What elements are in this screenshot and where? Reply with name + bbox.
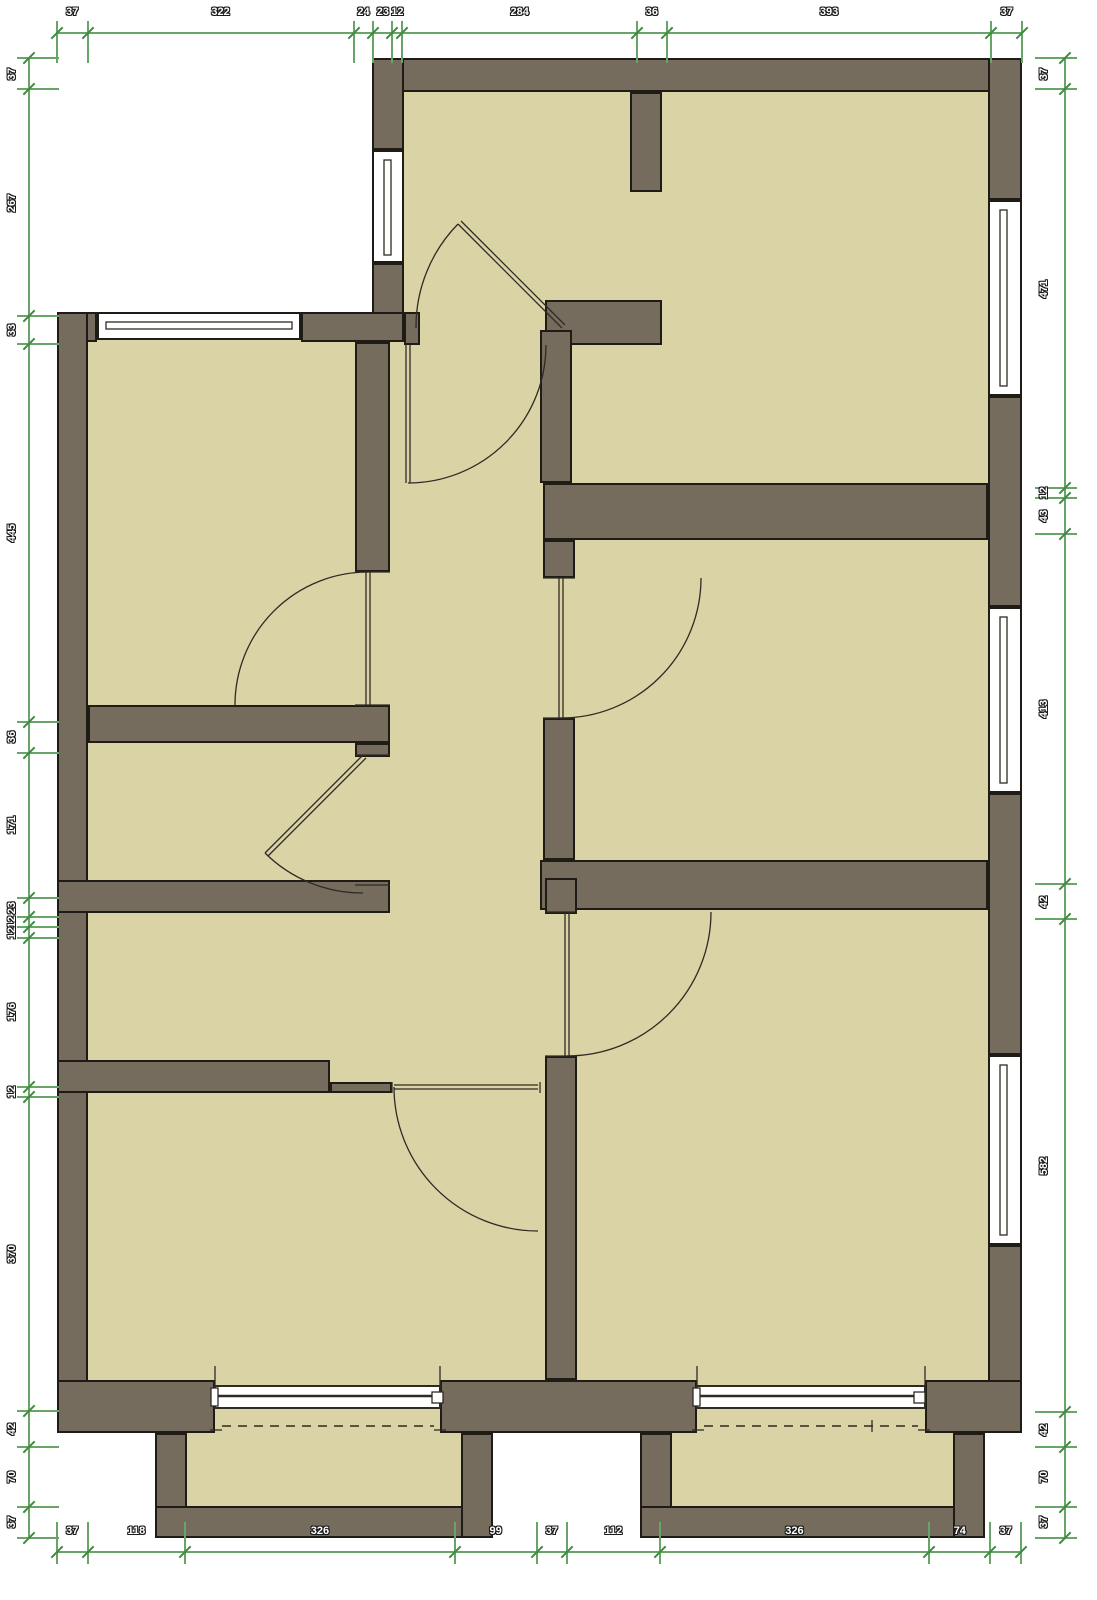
- dim-extension-line: [17, 1537, 59, 1539]
- door-arc: [416, 224, 458, 328]
- dim-label: 176: [6, 1003, 18, 1021]
- dim-label: 23: [6, 901, 18, 913]
- dim-extension-line: [17, 752, 59, 754]
- window-glass: [1000, 1065, 1007, 1235]
- dim-extension-line: [1035, 533, 1077, 535]
- dim-label: 37: [1000, 1525, 1012, 1537]
- dim-extension-line: [536, 1522, 538, 1564]
- dim-label: 370: [6, 1245, 18, 1263]
- dim-extension-line: [1035, 1411, 1077, 1413]
- dim-label: 322: [211, 6, 229, 18]
- dim-label: 42: [6, 1423, 18, 1435]
- dim-label: 12: [1038, 487, 1050, 499]
- door-leaf: [268, 758, 366, 856]
- dim-extension-line: [1021, 21, 1023, 63]
- dim-label: 326: [785, 1525, 803, 1537]
- door-arc: [265, 853, 363, 893]
- window-glass: [384, 160, 391, 255]
- dim-extension-line: [454, 1522, 456, 1564]
- dim-label: 37: [6, 1516, 18, 1528]
- dim-label: 112: [605, 1525, 623, 1537]
- dim-extension-line: [17, 88, 59, 90]
- door-leaf: [265, 755, 363, 853]
- dim-label: 36: [6, 731, 18, 743]
- door-arc: [567, 912, 711, 1056]
- dim-extension-line: [17, 1446, 59, 1448]
- floor-plan: 3732224231228436393373711832699371123267…: [0, 0, 1097, 1600]
- dim-extension-line: [17, 343, 59, 345]
- dim-label: 42: [1038, 1424, 1050, 1436]
- dim-extension-line: [401, 21, 403, 63]
- dim-label: 24: [357, 6, 369, 18]
- dim-label: 37: [1001, 6, 1013, 18]
- dim-label: 37: [6, 68, 18, 80]
- dim-chain-line: [57, 32, 1022, 34]
- dim-extension-line: [1035, 1506, 1077, 1508]
- dim-extension-line: [17, 1506, 59, 1508]
- dim-label: 267: [6, 194, 18, 212]
- door-leaf: [461, 221, 565, 325]
- dim-extension-line: [17, 916, 59, 918]
- dim-label: 70: [6, 1471, 18, 1483]
- window-glass: [1000, 210, 1007, 386]
- dim-label: 36: [646, 6, 658, 18]
- dim-extension-line: [17, 1096, 59, 1098]
- dim-extension-line: [990, 21, 992, 63]
- sliding-door-handle: [914, 1392, 925, 1403]
- dim-extension-line: [353, 21, 355, 63]
- dim-extension-line: [17, 937, 59, 939]
- dim-extension-line: [566, 1522, 568, 1564]
- dim-extension-line: [391, 21, 393, 63]
- dim-label: 37: [546, 1525, 558, 1537]
- dim-extension-line: [17, 315, 59, 317]
- window-glass: [1000, 617, 1007, 783]
- door-leaf: [458, 224, 562, 328]
- dim-label: 37: [66, 1525, 78, 1537]
- dim-label: 37: [1038, 1516, 1050, 1528]
- dim-label: 42: [1038, 896, 1050, 908]
- dim-chain-line: [1064, 58, 1066, 1538]
- dim-extension-line: [989, 1522, 991, 1564]
- dim-extension-line: [56, 1522, 58, 1564]
- dim-label: 12: [6, 1086, 18, 1098]
- dim-extension-line: [17, 1086, 59, 1088]
- dim-label: 445: [6, 524, 18, 542]
- window-glass: [106, 322, 292, 329]
- dim-extension-line: [87, 1522, 89, 1564]
- dim-label: 70: [1038, 1471, 1050, 1483]
- dim-label: 12: [391, 6, 403, 18]
- dim-extension-line: [1035, 1446, 1077, 1448]
- dim-label: 99: [489, 1525, 501, 1537]
- dim-extension-line: [666, 21, 668, 63]
- dim-extension-line: [1020, 1522, 1022, 1564]
- dim-extension-line: [17, 721, 59, 723]
- dim-label: 74: [954, 1525, 966, 1537]
- dim-label: 582: [1038, 1156, 1050, 1174]
- dim-label: 33: [6, 324, 18, 336]
- dim-extension-line: [1035, 883, 1077, 885]
- door-arc: [408, 345, 546, 483]
- dim-label: 393: [820, 6, 838, 18]
- door-arc: [235, 572, 368, 705]
- dim-extension-line: [1035, 57, 1077, 59]
- dim-extension-line: [1035, 1537, 1077, 1539]
- dim-chain-line: [28, 58, 30, 1538]
- dim-label: 284: [510, 6, 528, 18]
- dim-label: 171: [6, 816, 18, 834]
- dim-extension-line: [372, 21, 374, 63]
- plan-drawing-layer: [0, 0, 1097, 1600]
- dim-extension-line: [184, 1522, 186, 1564]
- dim-label: 37: [1038, 68, 1050, 80]
- dim-extension-line: [1035, 88, 1077, 90]
- dim-extension-line: [17, 926, 59, 928]
- door-arc: [394, 1087, 538, 1231]
- dim-extension-line: [17, 57, 59, 59]
- dim-extension-line: [17, 897, 59, 899]
- dim-label: 37: [66, 6, 78, 18]
- dim-label: 471: [1038, 279, 1050, 297]
- sliding-door-handle: [211, 1388, 218, 1406]
- sliding-door-handle: [693, 1388, 700, 1406]
- dim-extension-line: [87, 21, 89, 63]
- dim-extension-line: [928, 1522, 930, 1564]
- dim-label: 12: [6, 926, 18, 938]
- sliding-door-handle: [432, 1392, 443, 1403]
- dim-label: 326: [311, 1525, 329, 1537]
- dim-label: 118: [127, 1525, 145, 1537]
- door-arc: [561, 578, 701, 718]
- dim-label: 413: [1038, 700, 1050, 718]
- dim-extension-line: [1035, 918, 1077, 920]
- dim-label: 43: [1038, 510, 1050, 522]
- dim-label: 23: [377, 6, 389, 18]
- dim-extension-line: [17, 1410, 59, 1412]
- dim-extension-line: [659, 1522, 661, 1564]
- dim-extension-line: [636, 21, 638, 63]
